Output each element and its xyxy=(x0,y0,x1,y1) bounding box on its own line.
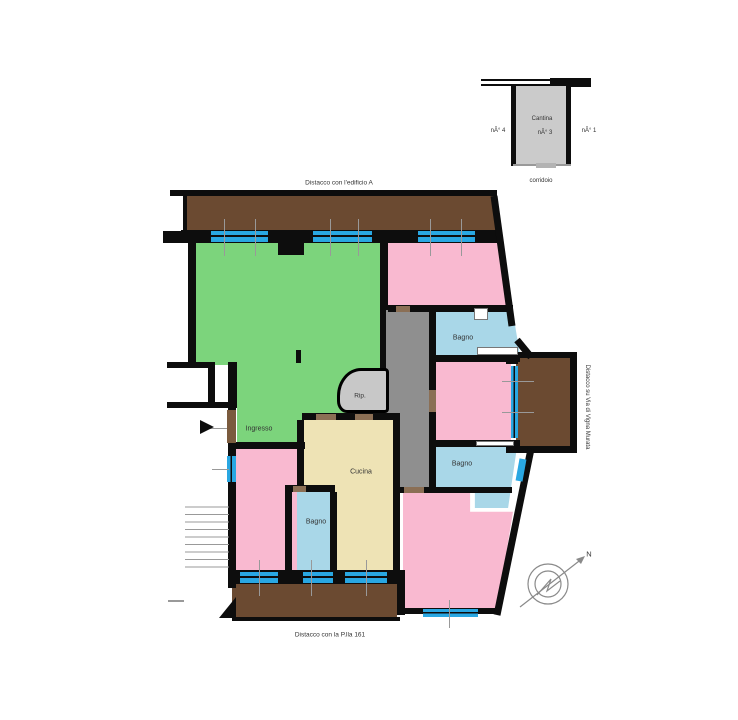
tick-2 xyxy=(255,219,256,256)
door-corridor-bottom xyxy=(404,487,424,493)
label-distacco-top: Distacco con l'edificio A xyxy=(305,180,373,187)
cellar-room xyxy=(511,86,571,166)
window-bottom-right xyxy=(423,609,478,617)
tick-11 xyxy=(210,428,227,429)
cellar-corridor-label: corridoio xyxy=(529,178,552,184)
door-entrance xyxy=(227,410,236,443)
room-bedroom-mid-right xyxy=(436,362,511,440)
wall-pinkleft-bagno3-divider xyxy=(285,492,292,570)
entrance-arrow-icon xyxy=(200,420,214,434)
cellar-top-line-1 xyxy=(481,79,553,81)
balcony-right xyxy=(516,358,570,447)
tick-8 xyxy=(311,560,312,596)
bagno2-bathtub xyxy=(476,441,514,446)
door-corridor-right xyxy=(429,390,436,412)
tick-9 xyxy=(366,560,367,596)
floor-plan-canvas: Cantina nÂ° 3 nÂ° 4 nÂ° 1 corridoio xyxy=(0,0,738,720)
tick-1 xyxy=(224,219,225,256)
corridor-lower xyxy=(400,420,429,490)
wall-cucina-right xyxy=(393,413,400,570)
wall-top-left-block xyxy=(163,231,181,243)
wall-balcony-right-side xyxy=(570,352,577,453)
tick-14 xyxy=(502,412,534,413)
label-bagno-2: Bagno xyxy=(452,461,472,468)
wall-landing-bottom xyxy=(167,402,237,408)
tick-4 xyxy=(358,219,359,256)
window-right-balcony xyxy=(511,366,518,438)
tick-7 xyxy=(259,560,260,596)
label-cucina: Cucina xyxy=(350,469,372,476)
room-bedroom-bottom-right xyxy=(403,493,513,610)
room-bagno-3 xyxy=(292,492,330,570)
balcony-top xyxy=(186,196,496,231)
door-cucina-1 xyxy=(316,414,336,420)
compass-icon xyxy=(520,556,585,607)
tick-13 xyxy=(502,381,534,382)
label-rip: Rip. xyxy=(354,393,366,400)
window-top-2 xyxy=(313,231,372,242)
wall-balcony-bottom-edge xyxy=(232,617,400,621)
label-distacco-bottom: Distacco con la P.lla 161 xyxy=(295,632,365,639)
wall-green-pinkleft-divider xyxy=(233,442,305,449)
room-rip xyxy=(337,368,389,413)
wall-bagno3-cucina-divider xyxy=(330,492,337,570)
door-cucina-2 xyxy=(355,414,373,420)
tick-10 xyxy=(449,600,450,628)
cellar-right-number: nÂ° 1 xyxy=(582,128,597,134)
window-top-1 xyxy=(211,231,268,242)
tick-12 xyxy=(212,469,229,470)
label-bagno-3: Bagno xyxy=(306,519,326,526)
wall-green-left xyxy=(188,236,196,366)
wall-pinkleft-cucina-divider xyxy=(297,420,304,492)
wall-stub-top xyxy=(278,243,304,255)
wall-top-border xyxy=(170,190,497,196)
window-bottom-2 xyxy=(303,572,333,583)
bagno1-bathtub xyxy=(477,347,518,355)
tick-6 xyxy=(461,219,462,256)
bagno1-toilet xyxy=(474,308,488,320)
tick-15 xyxy=(168,600,184,602)
label-ingresso: Ingresso xyxy=(246,426,273,433)
cellar-left-number: nÂ° 4 xyxy=(491,128,506,134)
label-distacco-right: Distacco su Via di Vigna Murata xyxy=(584,365,590,450)
tick-5 xyxy=(430,219,431,256)
corridor-upper xyxy=(383,310,429,420)
cellar-door xyxy=(536,163,556,168)
door-bagno3 xyxy=(293,486,306,492)
wall-green-pink-top-divider xyxy=(380,243,388,310)
room-ingresso-a xyxy=(196,243,380,365)
door-corridor-top xyxy=(396,306,410,312)
label-bagno-1: Bagno xyxy=(453,335,473,342)
room-bedroom-top-right xyxy=(388,243,513,310)
wall-green-corridor-divider xyxy=(380,310,386,370)
window-top-3 xyxy=(418,231,475,242)
cellar-room-number: nÂ° 3 xyxy=(538,130,553,136)
stairs xyxy=(185,500,229,572)
tick-3 xyxy=(330,219,331,256)
balcony-bottom xyxy=(232,583,397,620)
wall-stub-green xyxy=(296,350,301,363)
label-compass-north: N xyxy=(586,550,591,559)
cellar-room-label: Cantina xyxy=(532,116,553,122)
slanted-window xyxy=(519,459,523,481)
